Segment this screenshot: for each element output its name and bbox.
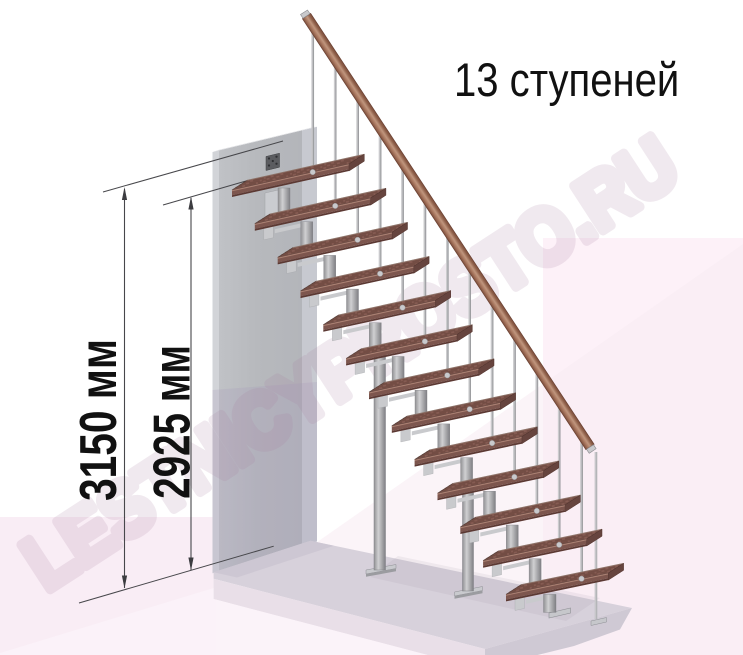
svg-text:3150 мм: 3150 мм: [69, 339, 127, 501]
svg-text:2925 мм: 2925 мм: [143, 345, 201, 499]
svg-text:13 ступеней: 13 ступеней: [454, 54, 679, 107]
